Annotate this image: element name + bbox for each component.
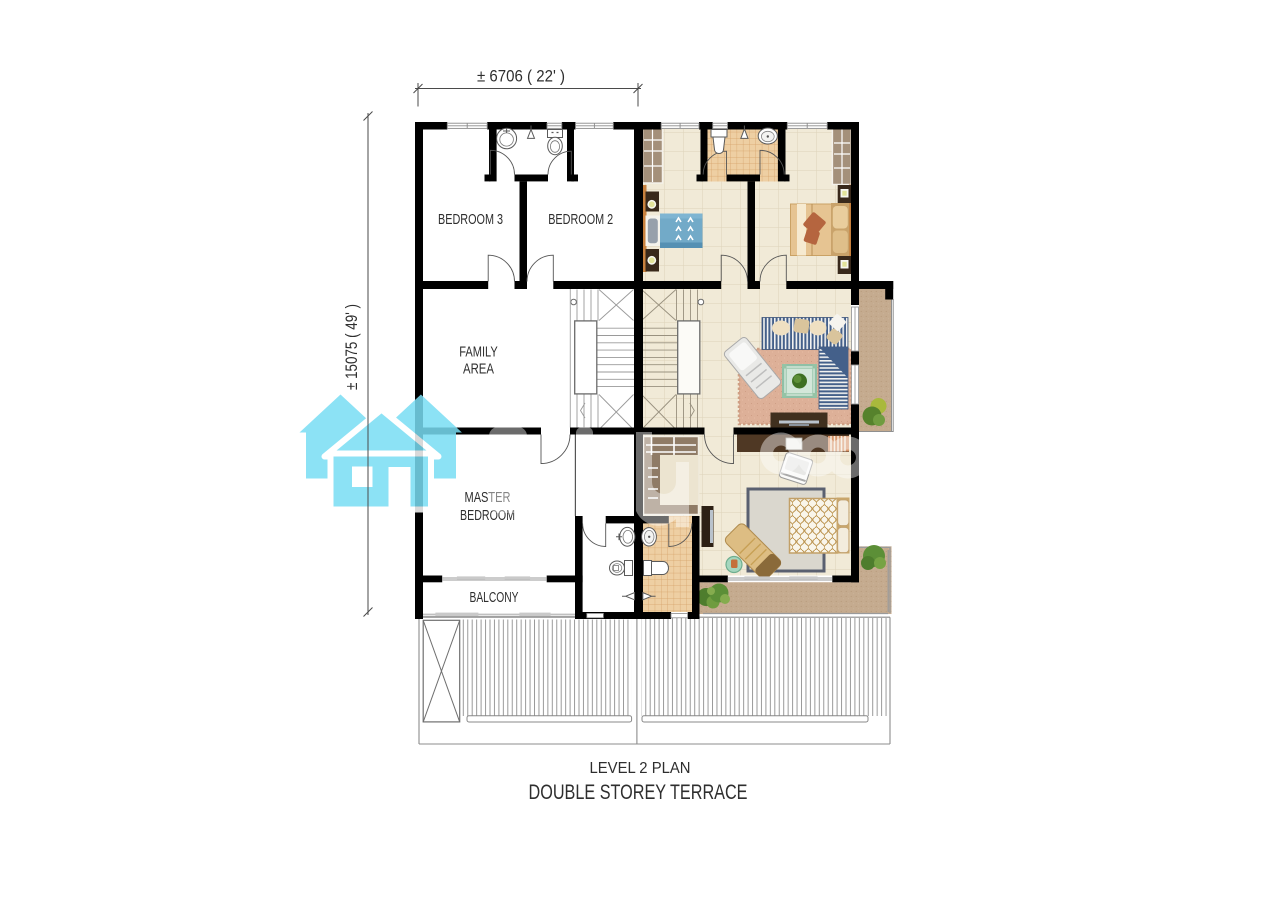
svg-text:BEDROOM 3: BEDROOM 3 bbox=[438, 212, 503, 228]
svg-text:BALCONY: BALCONY bbox=[470, 590, 519, 606]
svg-text:± 15075 ( 49' ): ± 15075 ( 49' ) bbox=[343, 304, 361, 390]
svg-text:AREA: AREA bbox=[463, 362, 494, 378]
svg-text:BEDROOM 2: BEDROOM 2 bbox=[548, 212, 613, 228]
svg-text:DOUBLE STOREY TERRACE: DOUBLE STOREY TERRACE bbox=[529, 781, 748, 804]
svg-text:± 6706 ( 22' ): ± 6706 ( 22' ) bbox=[477, 68, 565, 86]
svg-text:LEVEL 2 PLAN: LEVEL 2 PLAN bbox=[590, 760, 691, 777]
svg-text:FAMILY: FAMILY bbox=[459, 345, 498, 361]
